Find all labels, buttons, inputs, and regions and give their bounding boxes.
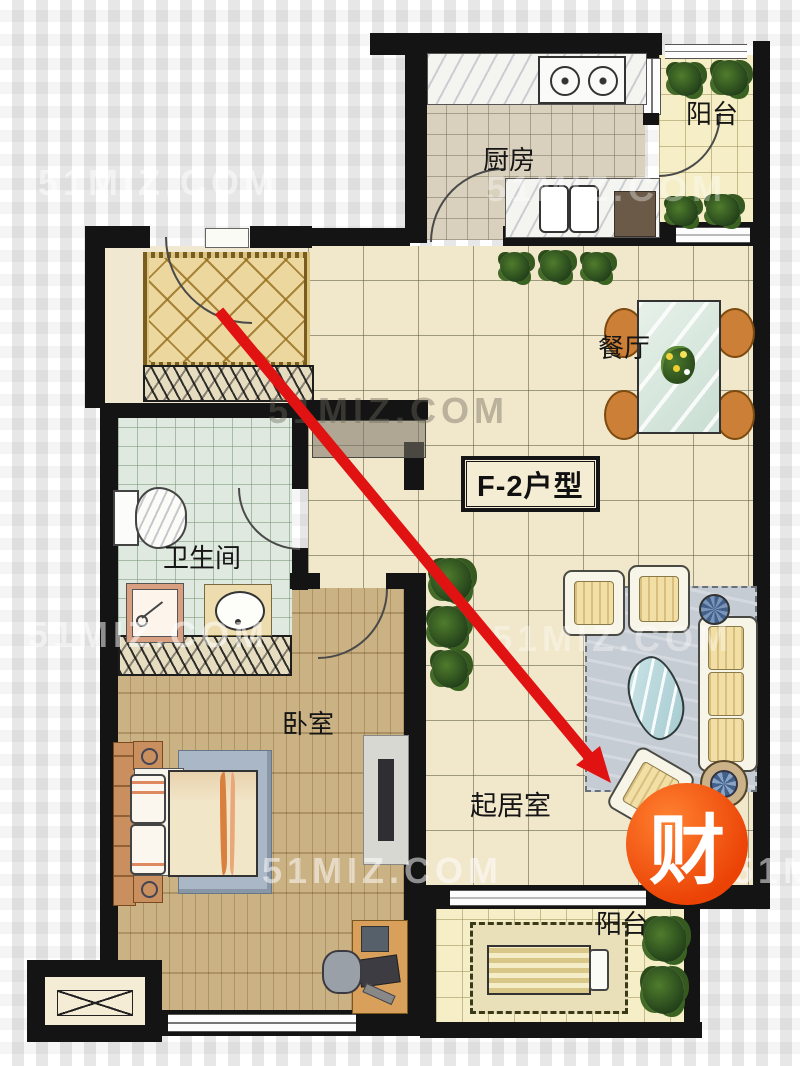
wealth-badge: 财 <box>626 783 748 905</box>
floor-plan: 厨房 阳台 餐厅 卫生间 卧室 起居室 阳台 F-2户型 51MIZ.COM 5… <box>0 0 800 1066</box>
floor-plan-page: { "plan": { "unit_label": "F-2户型", "labe… <box>0 0 800 1066</box>
wealth-arrow-icon <box>0 0 800 1066</box>
